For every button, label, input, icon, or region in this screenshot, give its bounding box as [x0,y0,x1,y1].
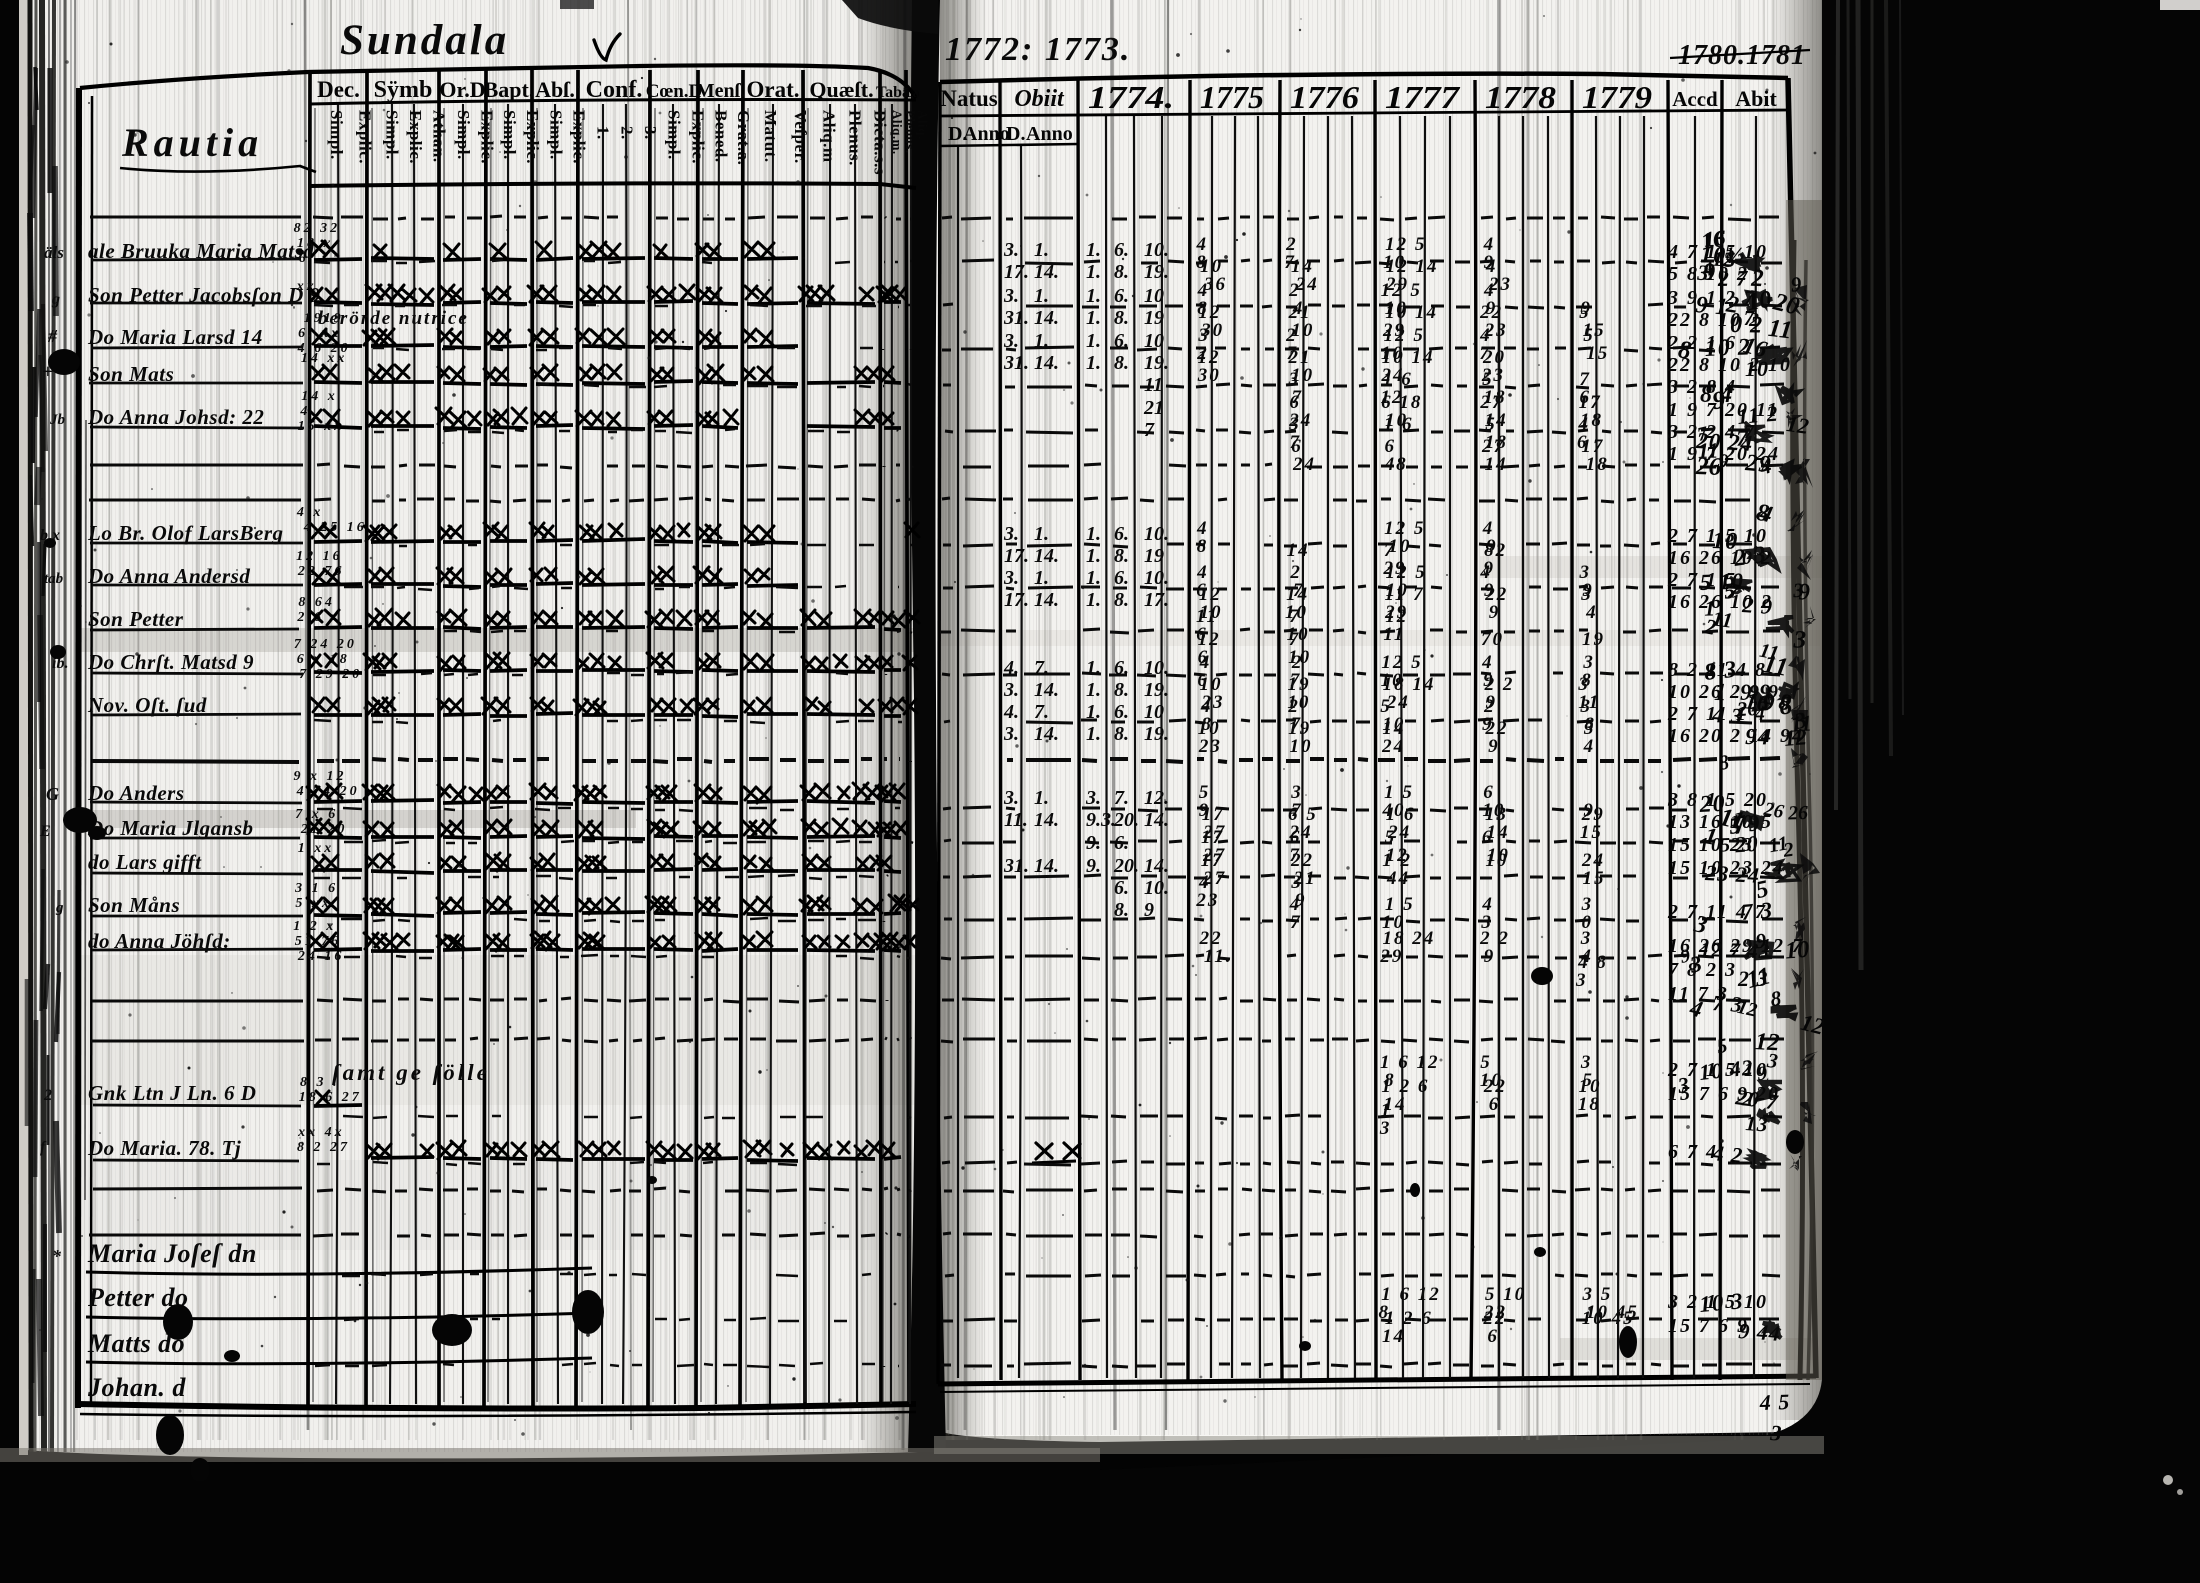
svg-text:1.: 1. [1086,330,1101,352]
svg-text:8.: 8. [1114,899,1129,921]
svg-text:8: 8 [1197,536,1209,557]
svg-text:24: 24 [1292,454,1316,475]
svg-text:4.: 4. [1003,701,1019,723]
svg-text:10: 10 [1144,701,1164,723]
svg-text:11: 11 [1767,314,1794,345]
svg-text:70: 70 [1481,629,1504,650]
svg-text:9.3.: 9.3. [1086,809,1116,831]
svg-text:1.: 1. [1034,239,1049,261]
svg-text:Dec.: Dec. [317,77,360,102]
svg-text:6.: 6. [1114,701,1129,723]
svg-text:Do Anna Johsd: 22: Do Anna Johsd: 22 [87,405,264,429]
svg-text:8.: 8. [1114,723,1129,745]
svg-text:Do Maria Jlgansb: Do Maria Jlgansb [87,816,254,840]
svg-text:9: 9 [1488,736,1500,757]
svg-text:1 xx: 1 xx [298,841,335,856]
svg-text:26: 26 [1761,799,1785,823]
svg-text:3.: 3. [641,126,660,140]
svg-text:1774.: 1774. [1088,79,1174,115]
svg-text:94: 94 [1745,724,1770,749]
svg-text:10.: 10. [1144,239,1169,261]
svg-text:17.: 17. [1144,589,1169,611]
svg-text:7: 7 [1290,912,1302,933]
svg-text:14.: 14. [1034,679,1059,701]
svg-text:7 24 20: 7 24 20 [294,637,357,652]
svg-text:xx 4x: xx 4x [297,1125,345,1140]
svg-text:19: 19 [1144,307,1164,329]
svg-text:Simpl.: Simpl. [383,110,402,160]
svg-text:Jb: Jb [49,412,66,428]
svg-text:Matut.: Matut. [761,110,780,163]
svg-text:29: 29 [1379,946,1403,967]
svg-text:19.: 19. [1144,352,1169,374]
svg-text:Anno: Anno [963,123,1010,145]
svg-text:Veſper.: Veſper. [791,110,810,164]
svg-text:6.: 6. [1114,877,1129,899]
svg-text:Do Maria. 78. Tj: Do Maria. 78. Tj [87,1136,241,1160]
svg-text:Conf.: Conf. [586,77,643,103]
svg-text:1 6 12: 1 6 12 [1381,1284,1441,1305]
svg-text:Sÿmb: Sÿmb [374,77,433,103]
svg-text:äls: äls [44,243,64,262]
svg-text:1.: 1. [1034,285,1049,307]
svg-text:9: 9 [1703,258,1716,285]
svg-text:Explic.: Explic. [356,110,375,164]
svg-text:11.: 11. [1004,809,1028,831]
svg-text:14.: 14. [1034,352,1059,374]
svg-text:6: 6 [1487,1326,1499,1347]
svg-text:6.: 6. [1114,832,1129,854]
svg-text:ſamt ge ſölle: ſamt ge ſölle [332,1060,490,1085]
svg-text:1779: 1779 [1582,79,1652,115]
svg-text:12.: 12. [1144,787,1169,809]
svg-text:9 x 12: 9 x 12 [294,769,347,784]
svg-text:Abit: Abit [1735,86,1777,111]
svg-text:1.: 1. [1086,545,1101,567]
svg-text:1.: 1. [1034,787,1049,809]
svg-text:9.: 9. [1086,832,1101,854]
svg-text:1.: 1. [1086,261,1101,283]
svg-text:Simpl.: Simpl. [454,110,473,160]
svg-text:31.: 31. [1003,307,1029,329]
svg-text:18 6 27: 18 6 27 [299,1090,362,1105]
svg-text:26: 26 [1787,802,1809,825]
svg-text:7.: 7. [1034,701,1049,723]
svg-text:1.: 1. [1034,330,1049,352]
svg-text:D.: D. [1006,123,1025,145]
svg-text:10.: 10. [1144,523,1169,545]
svg-text:14: 14 [1287,540,1310,561]
svg-text:19.: 19. [1144,261,1169,283]
svg-text:3.: 3. [1085,787,1101,809]
svg-text:6.: 6. [1114,330,1129,352]
svg-text:48: 48 [1384,454,1408,475]
svg-text:1775: 1775 [1200,79,1264,115]
svg-text:1.: 1. [1086,523,1101,545]
svg-text:Explic.: Explic. [478,110,497,164]
svg-text:3: 3 [1379,1118,1392,1139]
svg-text:11.: 11. [1204,946,1233,967]
svg-text:8.: 8. [1114,545,1129,567]
svg-text:5: 5 [1720,834,1731,856]
svg-text:Aliq.: Aliq. [916,110,931,140]
svg-text:1 6: 1 6 [1384,414,1414,435]
svg-text:1.: 1. [1034,523,1049,545]
svg-text:12: 12 [1783,724,1807,751]
svg-text:14: 14 [1484,454,1507,475]
svg-text:2 9: 2 9 [1741,592,1774,619]
svg-text:Aliq.m.: Aliq.m. [890,110,905,155]
svg-text:1.: 1. [1086,352,1101,374]
svg-text:9.: 9. [1086,855,1101,877]
svg-text:2: 2 [43,1087,52,1104]
svg-text:8 2 27: 8 2 27 [297,1140,350,1155]
svg-text:Dicta.s.s: Dicta.s.s [871,110,890,175]
svg-text:#: # [47,326,58,346]
svg-text:10: 10 [1144,285,1164,307]
svg-text:6.: 6. [1114,657,1129,679]
svg-text:Son Måns: Son Måns [88,893,180,917]
svg-text:Do Chrſt. Matsd 9: Do Chrſt. Matsd 9 [87,650,254,674]
svg-text:6.: 6. [1114,523,1129,545]
svg-text:3.: 3. [1003,330,1019,352]
svg-text:10: 10 [1289,736,1312,757]
svg-text:14 x: 14 x [301,389,338,404]
svg-text:4: 4 [1583,736,1596,757]
svg-text:14 xx: 14 xx [301,351,348,366]
svg-text:1.: 1. [594,126,613,140]
svg-text:11: 11 [1698,439,1719,463]
svg-text:E: E [39,823,51,840]
svg-text:Simpl.: Simpl. [547,110,566,160]
svg-text:Sundala: Sundala [340,17,509,64]
svg-text:Aliq.m: Aliq.m [820,110,839,163]
svg-text:Obiit: Obiit [1014,86,1065,112]
svg-text:1778: 1778 [1485,79,1556,115]
svg-text:4 5: 4 5 [1758,1389,1790,1415]
svg-text:Bapt.: Bapt. [484,77,535,102]
svg-text:g: g [51,291,60,308]
svg-text:21: 21 [1143,397,1164,419]
svg-text:3: 3 [1769,1420,1783,1446]
svg-text:Grat.a.: Grat.a. [734,110,753,165]
svg-text:23 24: 23 24 [1704,860,1761,888]
svg-text:8.: 8. [1114,307,1129,329]
svg-text:20.: 20. [1113,809,1139,831]
svg-text:Gnk Ltn J Ln. 6 D: Gnk Ltn J Ln. 6 D [88,1081,256,1105]
svg-text:3.: 3. [1003,679,1019,701]
svg-text:10: 10 [1144,330,1164,352]
svg-text:23: 23 [1195,890,1219,911]
svg-text:Simpl.: Simpl. [327,110,346,160]
svg-text:3.: 3. [1003,567,1019,589]
svg-text:4: 4 [1585,602,1598,623]
svg-text:82 32: 82 32 [294,221,341,236]
svg-text:La: La [903,86,919,101]
svg-text:20.: 20. [1113,855,1139,877]
svg-text:8.: 8. [1114,679,1129,701]
svg-text:berörde nutrice: berörde nutrice [318,308,469,329]
svg-text:6.: 6. [1114,285,1129,307]
svg-text:Or.D: Or.D [439,77,485,102]
svg-text:18: 18 [1578,1094,1601,1115]
svg-text:23: 23 [1198,736,1222,757]
svg-text:10 45: 10 45 [1582,1308,1635,1329]
svg-text:14.: 14. [1034,307,1059,329]
svg-text:19: 19 [1582,629,1605,650]
svg-text:Accd: Accd [1672,87,1718,111]
svg-text:Abſ.: Abſ. [535,77,575,102]
svg-text:9: 9 [1484,946,1496,967]
svg-text:19: 19 [1144,545,1164,567]
svg-text:Son Petter: Son Petter [88,607,184,631]
svg-text:1.: 1. [1086,285,1101,307]
svg-text:Bened.: Bened. [712,110,731,163]
svg-text:30: 30 [1197,365,1221,386]
svg-text:12: 12 [1754,1028,1780,1056]
svg-text:14.: 14. [1034,855,1059,877]
svg-text:12: 12 [1785,411,1810,439]
svg-text:Simpl.: Simpl. [665,110,684,160]
svg-text:1.: 1. [1086,701,1101,723]
svg-text:10.: 10. [1144,657,1169,679]
svg-text:3.: 3. [1003,239,1019,261]
svg-text:Maria Joſeſ dn: Maria Joſeſ dn [87,1239,257,1268]
svg-text:Simpl.: Simpl. [500,110,519,160]
svg-text:14.: 14. [1144,855,1169,877]
svg-text:14.: 14. [1034,545,1059,567]
svg-text:17.: 17. [1004,545,1029,567]
svg-text:14: 14 [1382,1326,1405,1347]
svg-text:7: 7 [1144,419,1155,441]
svg-text:11: 11 [1144,374,1163,396]
svg-text:16: 16 [1743,688,1770,717]
svg-text:31.: 31. [1003,855,1029,877]
svg-text:3.: 3. [1003,523,1019,545]
svg-text:Natus: Natus [940,86,998,111]
svg-text:8.: 8. [1114,352,1129,374]
svg-text:5: 5 [1724,248,1735,272]
svg-text:6.: 6. [1114,239,1129,261]
svg-text:3 1 6: 3 1 6 [294,881,338,896]
svg-text:Quæſt.: Quæſt. [809,77,873,102]
svg-text:44: 44 [1386,868,1410,889]
svg-text:1.: 1. [1086,307,1101,329]
svg-text:15 7 6 9: 15 7 6 9 [1668,1315,1749,1337]
svg-text:6 x 18: 6 x 18 [297,652,350,667]
svg-text:6.: 6. [1114,567,1129,589]
svg-text:tab: tab [44,571,64,587]
svg-text:16: 16 [1703,226,1727,252]
svg-text:3: 3 [1793,625,1807,653]
svg-text:9: 9 [1798,579,1811,605]
svg-text:G: G [46,784,59,804]
svg-text:17.: 17. [1004,261,1029,283]
svg-text:19.: 19. [1144,679,1169,701]
svg-text:3.: 3. [1003,723,1019,745]
svg-text:Explic.: Explic. [406,110,425,164]
svg-text:7.: 7. [1114,787,1129,809]
svg-text:8 64: 8 64 [298,595,335,610]
svg-text:Menſ.: Menſ. [696,80,745,102]
svg-text:3.: 3. [1003,285,1019,307]
svg-text:Rautia: Rautia [121,120,263,165]
svg-text:14.: 14. [1144,809,1169,831]
svg-text:g: g [55,900,64,916]
svg-text:8.: 8. [1114,589,1129,611]
svg-text:7.: 7. [1034,657,1049,679]
svg-text:Explic.: Explic. [689,110,708,164]
svg-text:4.: 4. [1003,657,1019,679]
svg-text:11: 11 [1383,624,1405,645]
svg-text:7: 7 [1736,426,1749,452]
svg-text:Cœn.D: Cœn.D [646,81,702,102]
svg-text:Lo Br. Olof LarsBerg: Lo Br. Olof LarsBerg [87,521,284,545]
svg-text:15: 15 [1586,343,1609,364]
svg-text:6: 6 [1489,1094,1501,1115]
svg-text:10: 10 [1784,936,1810,965]
svg-text:3: 3 [1575,970,1588,991]
svg-text:1: 1 [1704,596,1715,620]
svg-text:1.: 1. [1086,657,1101,679]
svg-text:1.: 1. [1086,567,1101,589]
svg-text:do Lars gifft: do Lars gifft [88,850,202,874]
svg-text:Orat.: Orat. [746,77,799,102]
svg-text:10: 10 [1485,850,1508,871]
svg-text:1772: 1773.: 1772: 1773. [945,31,1131,68]
svg-text:1.: 1. [1034,567,1049,589]
svg-text:9: 9 [1144,899,1154,921]
svg-text:10 3: 10 3 [1698,1288,1744,1317]
svg-text:15: 15 [1580,822,1603,843]
svg-text:1777: 1777 [1385,79,1461,115]
svg-text:14.: 14. [1034,261,1059,283]
svg-text:19.: 19. [1144,723,1169,745]
svg-text:Johan. d: Johan. d [87,1373,186,1402]
svg-text:3.: 3. [1003,787,1019,809]
svg-text:4 2: 4 2 [1710,1140,1744,1168]
svg-text:Athan.: Athan. [430,110,449,163]
svg-text:11: 11 [1767,832,1790,857]
svg-text:Anno: Anno [1026,123,1073,145]
svg-text:9: 9 [1489,602,1501,623]
svg-text:1.: 1. [1086,239,1101,261]
svg-text:17.: 17. [1004,589,1029,611]
svg-text:15: 15 [1583,868,1606,889]
svg-text:18: 18 [1586,454,1609,475]
svg-text:31.: 31. [1003,352,1029,374]
svg-text:14.: 14. [1034,809,1059,831]
svg-text:1.: 1. [1086,723,1101,745]
svg-text:4 x: 4 x [296,505,324,520]
svg-text:*: * [52,1246,62,1266]
svg-text:10.: 10. [1144,877,1169,899]
svg-text:1.: 1. [1086,679,1101,701]
svg-text:14.: 14. [1034,589,1059,611]
svg-text:Do Maria Larsd 14: Do Maria Larsd 14 [87,325,263,349]
svg-text:1.: 1. [1086,589,1101,611]
svg-text:12 16: 12 16 [296,549,343,564]
svg-text:Plenus.: Plenus. [846,110,865,166]
svg-text:2.: 2. [618,126,637,140]
svg-text:1776: 1776 [1290,79,1359,115]
svg-text:10.: 10. [1144,567,1169,589]
svg-text:6 7 4: 6 7 4 [1668,1141,1718,1163]
svg-text:1: 1 [1714,679,1727,706]
svg-text:11: 11 [1761,649,1790,682]
svg-text:10: 10 [1745,286,1773,316]
svg-text:8.: 8. [1114,261,1129,283]
svg-text:Explic.: Explic. [523,110,542,164]
svg-text:Explic.: Explic. [570,110,589,164]
svg-text:24: 24 [1381,736,1405,757]
